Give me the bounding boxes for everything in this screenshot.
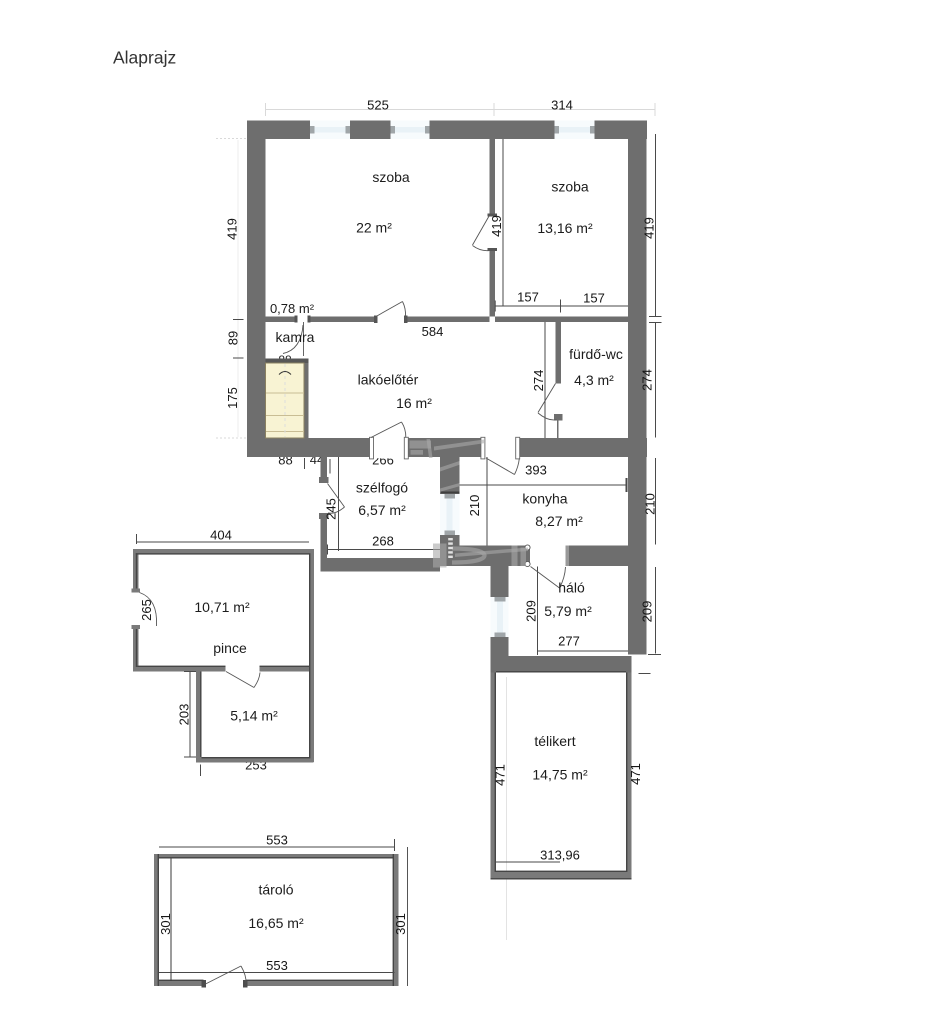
svg-text:419: 419 <box>489 215 504 237</box>
svg-text:14,75 m²: 14,75 m² <box>532 767 588 783</box>
svg-text:157: 157 <box>583 291 605 306</box>
svg-text:10,71 m²: 10,71 m² <box>194 599 250 615</box>
svg-text:525: 525 <box>367 98 389 113</box>
svg-text:313,96: 313,96 <box>540 848 580 863</box>
svg-text:203: 203 <box>177 704 192 726</box>
svg-text:404: 404 <box>210 528 232 543</box>
svg-text:210: 210 <box>467 495 482 517</box>
svg-text:lakóelőtér: lakóelőtér <box>358 372 419 388</box>
svg-text:268: 268 <box>372 534 394 549</box>
svg-text:274: 274 <box>640 369 655 391</box>
svg-text:konyha: konyha <box>522 491 567 507</box>
svg-text:5,79 m²: 5,79 m² <box>544 603 592 619</box>
svg-text:89: 89 <box>226 331 241 345</box>
svg-text:157: 157 <box>517 290 539 305</box>
svg-text:szélfogó: szélfogó <box>356 480 408 496</box>
svg-text:471: 471 <box>628 763 643 785</box>
svg-text:0,78 m²: 0,78 m² <box>270 301 315 316</box>
svg-text:419: 419 <box>225 218 240 240</box>
svg-text:fürdő-wc: fürdő-wc <box>569 346 623 362</box>
svg-text:209: 209 <box>640 601 655 623</box>
svg-text:22 m²: 22 m² <box>356 220 392 236</box>
svg-text:553: 553 <box>266 833 288 848</box>
svg-text:5,14 m²: 5,14 m² <box>230 708 278 724</box>
svg-text:8,27 m²: 8,27 m² <box>535 513 583 529</box>
svg-text:301: 301 <box>393 913 408 935</box>
svg-text:245: 245 <box>324 498 339 520</box>
svg-text:13,16 m²: 13,16 m² <box>537 220 593 236</box>
svg-text:265: 265 <box>139 599 154 621</box>
svg-text:210: 210 <box>643 493 658 515</box>
svg-text:314: 314 <box>551 98 573 113</box>
svg-text:háló: háló <box>558 580 585 596</box>
svg-text:274: 274 <box>531 370 546 392</box>
svg-text:Alaprajz: Alaprajz <box>113 48 176 68</box>
svg-text:szoba: szoba <box>551 179 589 195</box>
svg-text:393: 393 <box>525 463 547 478</box>
svg-text:209: 209 <box>524 600 539 622</box>
svg-text:553: 553 <box>266 958 288 973</box>
svg-text:419: 419 <box>642 217 657 239</box>
svg-text:pince: pince <box>213 640 247 656</box>
svg-text:301: 301 <box>158 913 173 935</box>
svg-text:4,3 m²: 4,3 m² <box>574 372 614 388</box>
svg-text:584: 584 <box>422 324 444 339</box>
svg-text:télikert: télikert <box>534 733 575 749</box>
svg-text:tároló: tároló <box>258 882 293 898</box>
svg-text:175: 175 <box>225 387 240 409</box>
svg-text:szoba: szoba <box>372 169 410 185</box>
svg-text:6,57 m²: 6,57 m² <box>358 502 406 518</box>
svg-text:16 m²: 16 m² <box>396 395 432 411</box>
svg-text:277: 277 <box>558 634 580 649</box>
svg-text:16,65 m²: 16,65 m² <box>248 915 304 931</box>
svg-text:kamra: kamra <box>276 329 315 345</box>
svg-text:471: 471 <box>493 764 508 786</box>
